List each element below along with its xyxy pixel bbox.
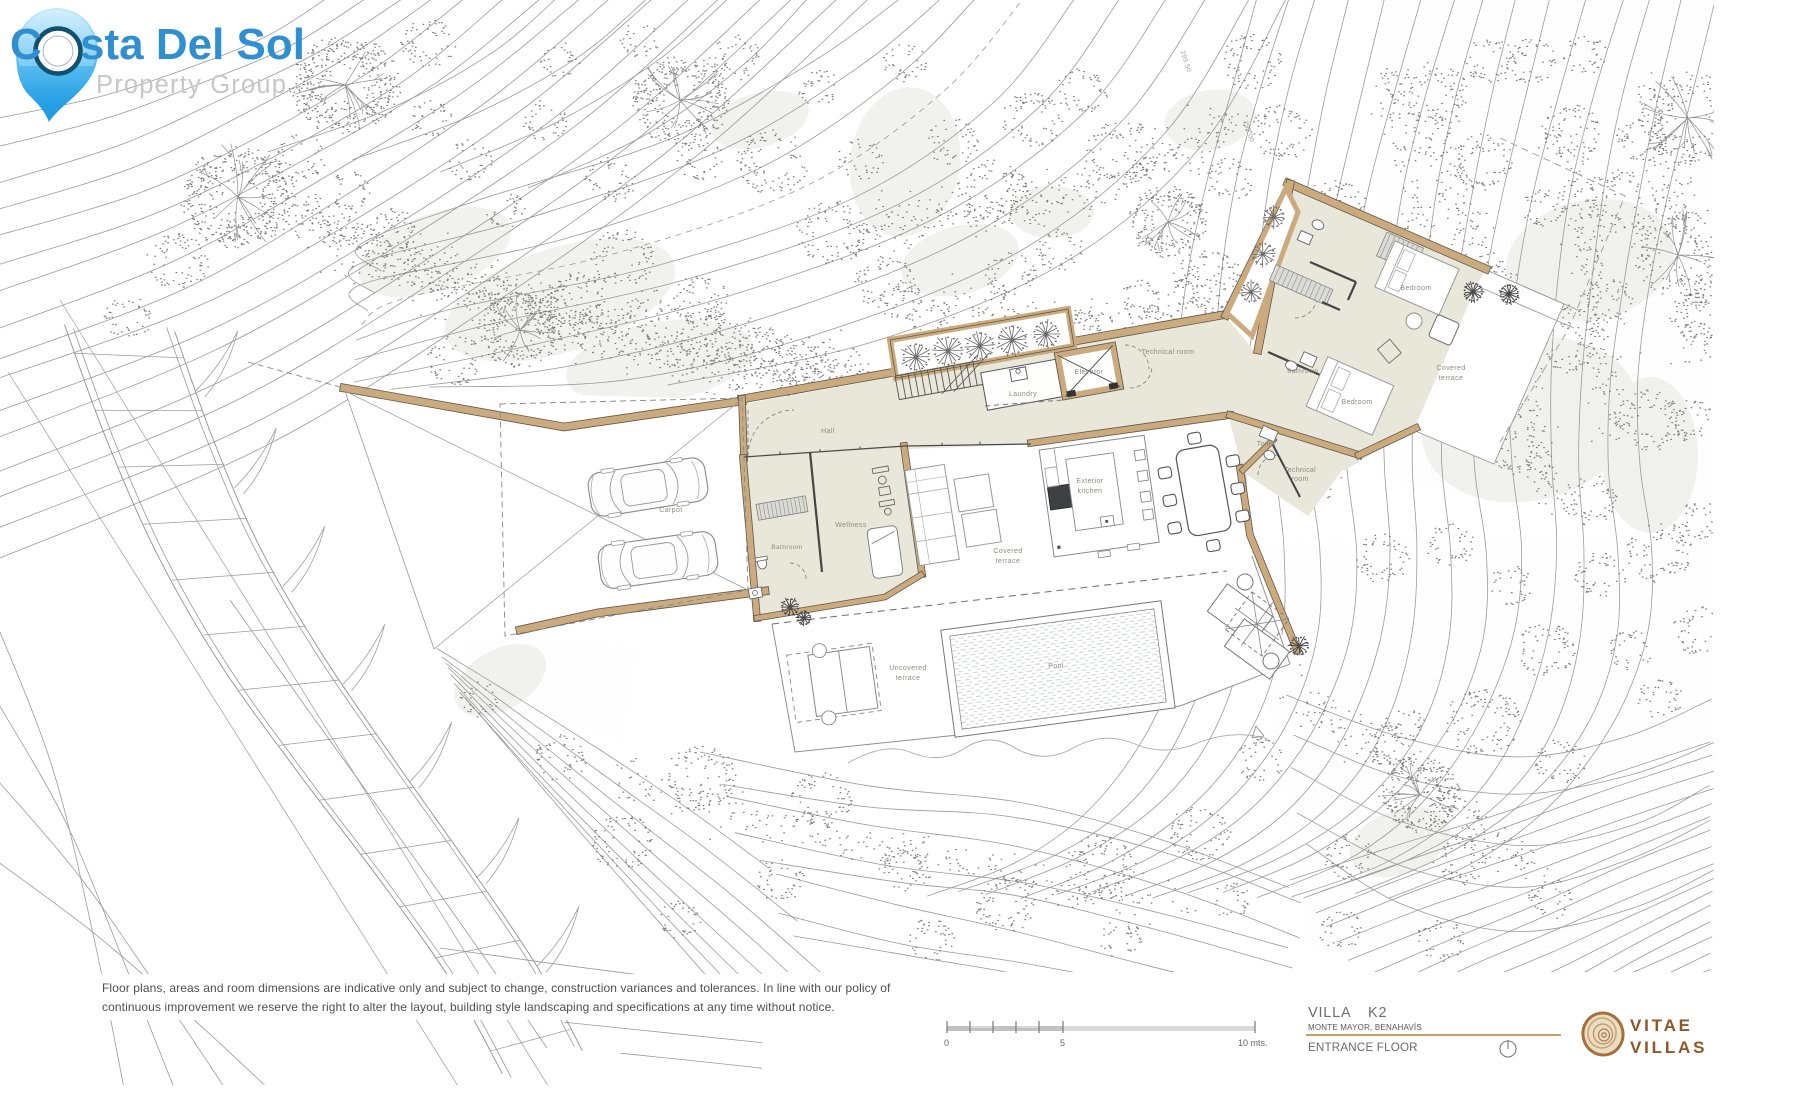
svg-text:Floor plans, areas and room di: Floor plans, areas and room dimensions a… [102, 981, 891, 995]
svg-text:Laundry: Laundry [1009, 391, 1037, 398]
svg-text:C: C [10, 20, 42, 69]
svg-text:VILLA: VILLA [1308, 1005, 1352, 1021]
svg-text:Technical: Technical [1284, 467, 1316, 474]
svg-text:room: room [1291, 476, 1308, 483]
svg-text:Covered: Covered [1436, 365, 1465, 372]
svg-text:Bathroom: Bathroom [1287, 368, 1318, 375]
svg-text:Carpot: Carpot [659, 507, 682, 514]
svg-text:terrace: terrace [1439, 375, 1464, 382]
svg-text:kitchen: kitchen [1078, 488, 1103, 495]
svg-text:Wellness: Wellness [835, 522, 867, 529]
svg-text:10 mts.: 10 mts. [1238, 1038, 1268, 1048]
svg-text:5: 5 [1060, 1038, 1065, 1048]
svg-text:Elevator: Elevator [1075, 369, 1104, 376]
svg-text:sta Del Sol: sta Del Sol [80, 20, 305, 69]
svg-text:Toilet: Toilet [1257, 441, 1276, 448]
svg-text:Covered: Covered [993, 548, 1022, 555]
svg-text:Bedroom: Bedroom [1400, 285, 1431, 292]
svg-text:continuous improvement we rese: continuous improvement we reserve the ri… [102, 1000, 835, 1014]
svg-text:ENTRANCE FLOOR: ENTRANCE FLOOR [1308, 1041, 1418, 1054]
svg-text:Property Group: Property Group [96, 71, 287, 99]
svg-text:Uncovered: Uncovered [889, 665, 926, 672]
svg-text:VILLAS: VILLAS [1630, 1038, 1707, 1057]
svg-text:Bedroom: Bedroom [1341, 399, 1372, 406]
svg-text:MONTE MAYOR, BENAHAVÍS: MONTE MAYOR, BENAHAVÍS [1308, 1023, 1422, 1032]
svg-text:terrace: terrace [996, 558, 1021, 565]
svg-text:VITAE: VITAE [1630, 1016, 1693, 1035]
svg-text:K2: K2 [1368, 1005, 1387, 1021]
svg-text:terrace: terrace [896, 675, 921, 682]
svg-text:Pool: Pool [1048, 663, 1064, 670]
svg-text:Technical room: Technical room [1142, 349, 1195, 356]
svg-text:Bathroom: Bathroom [771, 544, 802, 551]
svg-text:Exterior: Exterior [1076, 478, 1104, 485]
svg-text:0: 0 [944, 1038, 949, 1048]
svg-text:Hall: Hall [821, 428, 835, 435]
